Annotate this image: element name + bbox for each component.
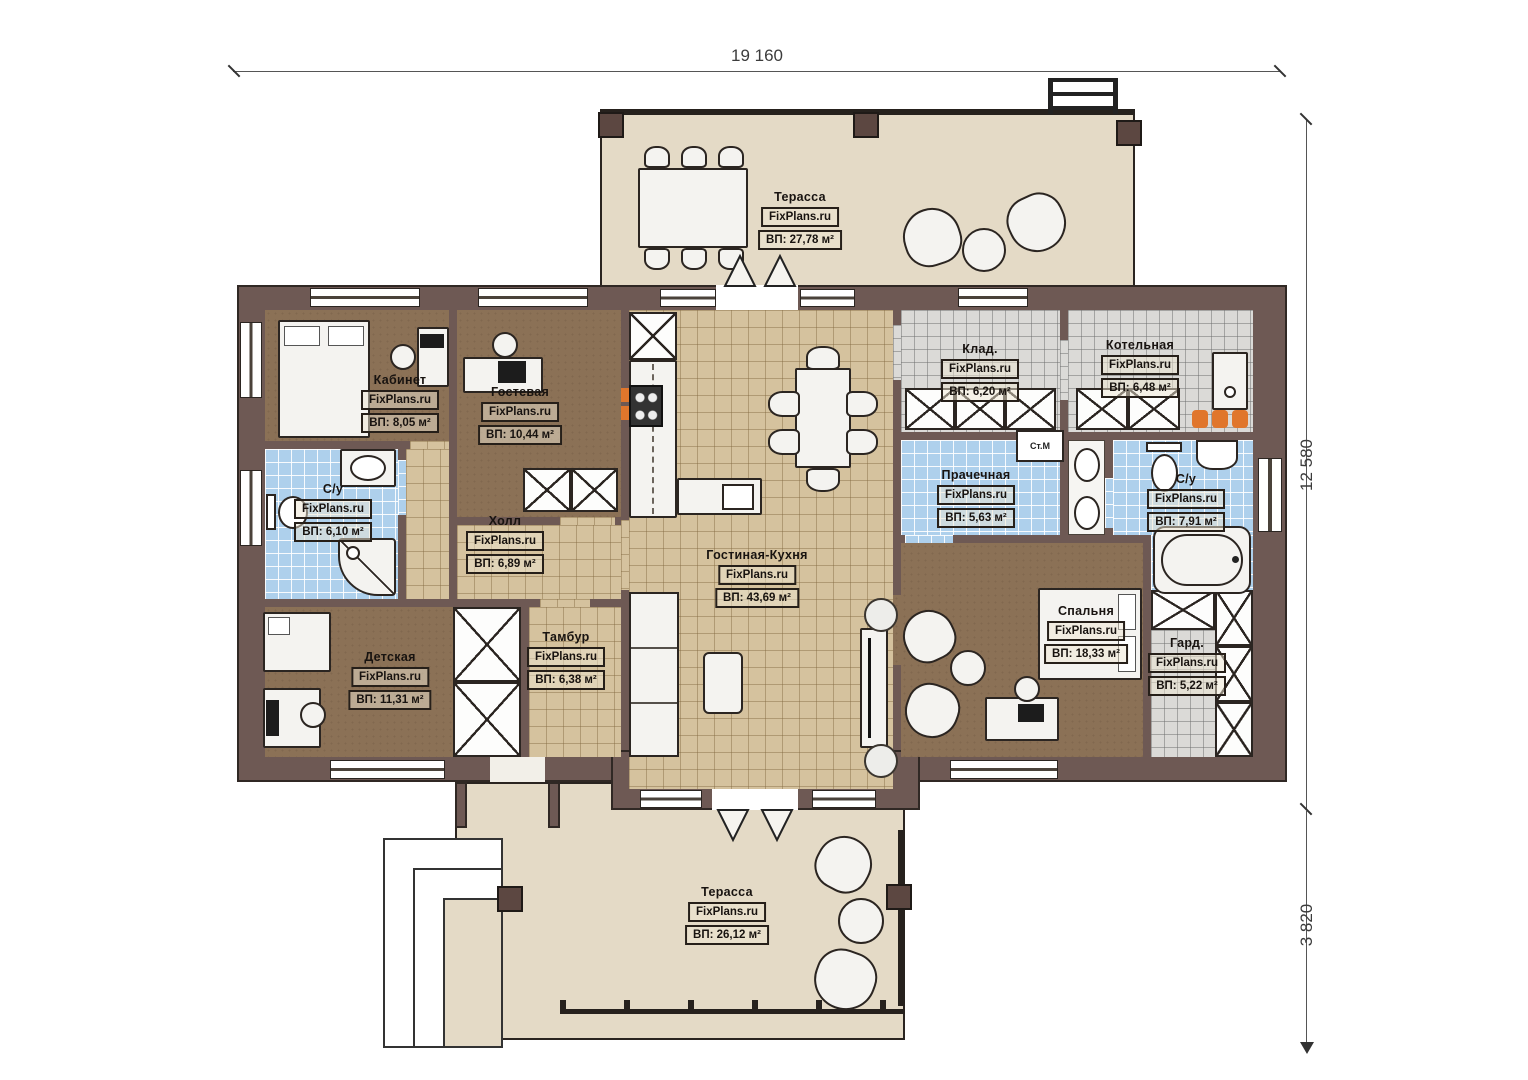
chair [806, 468, 840, 492]
room-area: ВП: 6,89 м² [466, 554, 544, 574]
window [240, 470, 262, 546]
column [853, 112, 879, 138]
boiler-gauge [1224, 386, 1236, 398]
laptop [1018, 704, 1044, 722]
sink [1196, 440, 1238, 470]
door-swing-icon [720, 254, 800, 288]
room-name: Кабинет [374, 373, 427, 387]
room-label-spalnya: Спальня FixPlans.ru ВП: 18,33 м² [1044, 604, 1128, 664]
brand-watermark: FixPlans.ru [481, 402, 559, 422]
sofa [629, 592, 679, 757]
plant [864, 598, 898, 632]
room-name: Прачечная [942, 468, 1011, 482]
shower-head [346, 546, 360, 560]
terrace-side-railing [898, 830, 905, 1006]
tv-stand [860, 628, 888, 748]
door-opening [1105, 478, 1113, 528]
room-area: ВП: 6,20 м² [941, 382, 1019, 402]
wardrobe-unit [453, 607, 521, 682]
wardrobe-unit [453, 682, 521, 757]
chair [644, 248, 670, 270]
pillow [284, 326, 320, 346]
office-chair [1014, 676, 1040, 702]
room-label-klad: Клад. FixPlans.ru ВП: 6,20 м² [941, 342, 1019, 402]
room-label-tambur: Тамбур FixPlans.ru ВП: 6,38 м² [527, 630, 605, 690]
porch-wall [548, 782, 560, 828]
valve [1192, 410, 1208, 428]
monitor [498, 361, 526, 383]
window [310, 288, 420, 307]
door-opening [540, 599, 590, 607]
office-chair [390, 344, 416, 370]
round-table [962, 228, 1006, 272]
door-opening [893, 325, 901, 380]
room-label-living: Гостиная-Кухня FixPlans.ru ВП: 43,69 м² [706, 548, 807, 608]
room-area: ВП: 18,33 м² [1044, 644, 1128, 664]
chair [846, 429, 878, 455]
room-area: ВП: 27,78 м² [758, 230, 842, 250]
dimension-arrow [1300, 1042, 1314, 1054]
column [886, 884, 912, 910]
brand-watermark: FixPlans.ru [688, 902, 766, 922]
room-name: Гостиная-Кухня [706, 548, 807, 562]
room-area: ВП: 5,22 м² [1148, 676, 1226, 696]
dimension-terrace-label: 3 820 [1297, 875, 1317, 975]
window [812, 790, 876, 808]
room-name: Холл [489, 514, 522, 528]
room-name: Терасса [774, 190, 826, 204]
valve [1212, 410, 1228, 428]
room-area: ВП: 8,05 м² [361, 413, 439, 433]
window [1258, 458, 1282, 532]
brand-watermark: FixPlans.ru [351, 667, 429, 687]
chair [768, 429, 800, 455]
column [1116, 120, 1142, 146]
room-name: Терасса [701, 885, 753, 899]
door-opening [905, 535, 953, 543]
room-label-garderob: Гард. FixPlans.ru ВП: 5,22 м² [1148, 636, 1226, 696]
window [800, 289, 855, 307]
room-label-prachechnaya: Прачечная FixPlans.ru ВП: 5,63 м² [937, 468, 1015, 528]
window [958, 288, 1028, 307]
kitchen-sink [722, 484, 754, 510]
wardrobe-unit [1215, 702, 1253, 757]
door-opening [560, 517, 615, 525]
room-name: Тамбур [542, 630, 589, 644]
stove-knob [621, 388, 629, 402]
chair [846, 391, 878, 417]
room-label-terrace-bottom: Терасса FixPlans.ru ВП: 26,12 м² [685, 885, 769, 945]
brand-watermark: FixPlans.ru [527, 647, 605, 667]
drain [1232, 556, 1239, 563]
room-name: Котельная [1106, 338, 1174, 352]
boiler [1212, 352, 1248, 410]
chair [768, 391, 800, 417]
terrace-step [443, 898, 503, 1048]
brand-watermark: FixPlans.ru [761, 207, 839, 227]
room-area: ВП: 6,10 м² [294, 522, 372, 542]
door-opening [1060, 340, 1068, 400]
room-area: ВП: 6,48 м² [1101, 378, 1179, 398]
door-opening [398, 460, 406, 515]
washing-machine: Ст.М [1016, 430, 1064, 462]
brand-watermark: FixPlans.ru [1148, 653, 1226, 673]
round-table [950, 650, 986, 686]
brand-watermark: FixPlans.ru [718, 565, 796, 585]
wardrobe-unit [523, 468, 571, 512]
toilet-tank [266, 494, 276, 530]
room-area: ВП: 10,44 м² [478, 425, 562, 445]
tv [868, 638, 871, 738]
dimension-line-top [233, 71, 1280, 72]
brand-watermark: FixPlans.ru [361, 390, 439, 410]
room-label-su-right: С/у FixPlans.ru ВП: 7,91 м² [1147, 472, 1225, 532]
brand-watermark: FixPlans.ru [466, 531, 544, 551]
brand-watermark: FixPlans.ru [937, 485, 1015, 505]
office-chair [300, 702, 326, 728]
window [660, 289, 716, 307]
stove-knob [621, 406, 629, 420]
coffee-table [703, 652, 743, 714]
room-label-kotelnaya: Котельная FixPlans.ru ВП: 6,48 м² [1101, 338, 1179, 398]
monitor [420, 334, 444, 348]
room-name: С/у [323, 482, 343, 496]
window [240, 322, 262, 398]
room-label-kabinet: Кабинет FixPlans.ru ВП: 8,05 м² [361, 373, 439, 433]
vent-duct [1074, 448, 1100, 482]
room-area: ВП: 43,69 м² [715, 588, 799, 608]
room-area: ВП: 5,63 м² [937, 508, 1015, 528]
plant [864, 744, 898, 778]
dining-table [795, 368, 851, 468]
stove [629, 385, 663, 427]
terrace-door-opening [716, 285, 798, 310]
room-area: ВП: 7,91 м² [1147, 512, 1225, 532]
porch-wall [455, 782, 467, 828]
room-label-hall: Холл FixPlans.ru ВП: 6,89 м² [466, 514, 544, 574]
door-swing-icon [712, 808, 798, 844]
valve [1232, 410, 1248, 428]
door-opening [410, 441, 449, 449]
room-name: Гард. [1170, 636, 1204, 650]
room-hall [406, 449, 449, 599]
window [478, 288, 588, 307]
chair [718, 146, 744, 168]
window [640, 790, 702, 808]
room-area: ВП: 11,31 м² [348, 690, 431, 710]
pillow [328, 326, 364, 346]
round-table [838, 898, 884, 944]
monitor [266, 700, 279, 736]
room-name: Детская [364, 650, 415, 664]
brand-watermark: FixPlans.ru [1101, 355, 1179, 375]
column [497, 886, 523, 912]
chair [806, 346, 840, 370]
window [950, 760, 1058, 779]
brand-watermark: FixPlans.ru [941, 359, 1019, 379]
wardrobe-unit [1151, 590, 1215, 630]
wardrobe-unit [571, 468, 618, 512]
column [598, 112, 624, 138]
room-area: ВП: 6,38 м² [527, 670, 605, 690]
room-name: Гостевая [491, 385, 549, 399]
vent-duct [1074, 496, 1100, 530]
washing-machine-label: Ст.М [1030, 441, 1050, 451]
entry-door-opening [490, 757, 545, 782]
dimension-width-label: 19 160 [657, 46, 857, 66]
brand-watermark: FixPlans.ru [1147, 489, 1225, 509]
brand-watermark: FixPlans.ru [1047, 621, 1125, 641]
room-label-gostevaya: Гостевая FixPlans.ru ВП: 10,44 м² [478, 385, 562, 445]
room-name: Спальня [1058, 604, 1114, 618]
bathtub-basin [1161, 534, 1243, 586]
chair [681, 146, 707, 168]
ladder [1048, 78, 1118, 114]
chair [681, 248, 707, 270]
room-area: ВП: 26,12 м² [685, 925, 769, 945]
sink [350, 455, 386, 481]
floor-plan: 19 160 12 580 3 820 [0, 0, 1528, 1080]
chair [644, 146, 670, 168]
room-label-su-left: С/у FixPlans.ru ВП: 6,10 м² [294, 482, 372, 542]
room-name: С/у [1176, 472, 1196, 486]
room-label-terrace-top: Терасса FixPlans.ru ВП: 27,78 м² [758, 190, 842, 250]
pantry-cabinet [629, 312, 677, 360]
toilet-tank [1146, 442, 1182, 452]
dimension-height-label: 12 580 [1297, 415, 1317, 515]
office-chair [492, 332, 518, 358]
outdoor-dining-table [638, 168, 748, 248]
pillow [268, 617, 290, 635]
brand-watermark: FixPlans.ru [294, 499, 372, 519]
room-name: Клад. [962, 342, 997, 356]
room-label-detskaya: Детская FixPlans.ru ВП: 11,31 м² [348, 650, 431, 710]
door-opening [621, 520, 629, 590]
window [330, 760, 445, 779]
terrace-door-opening [712, 789, 798, 810]
